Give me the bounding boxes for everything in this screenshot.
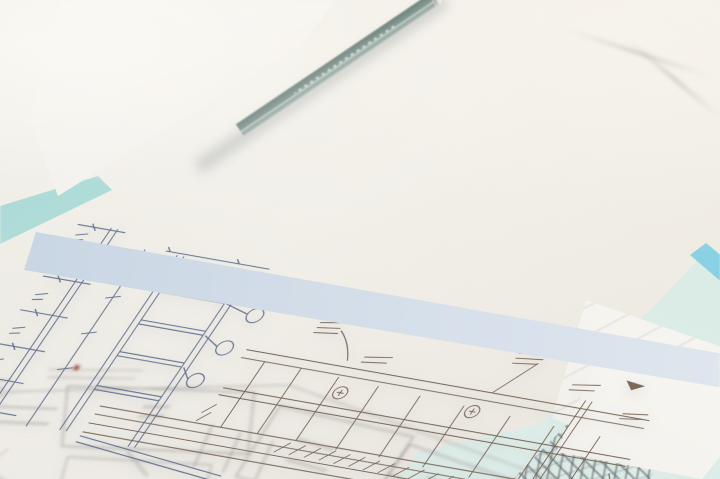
photo-scene [0,0,720,479]
